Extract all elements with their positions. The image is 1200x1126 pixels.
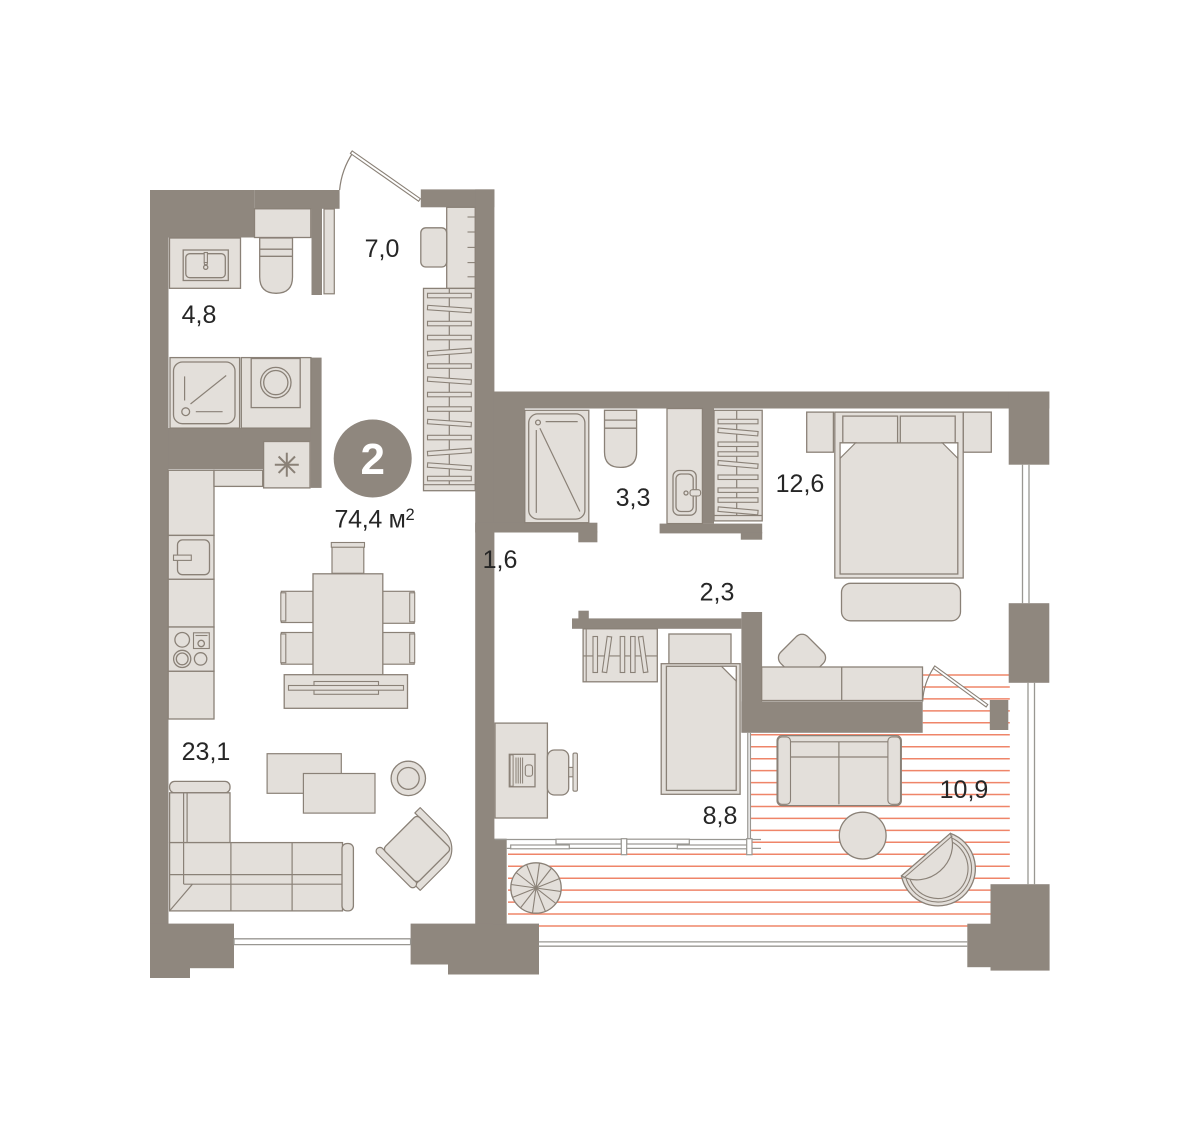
svg-text:2,3: 2,3 (700, 579, 735, 607)
svg-text:74,4 м2: 74,4 м2 (335, 506, 415, 534)
svg-text:8,8: 8,8 (703, 802, 738, 830)
svg-text:7,0: 7,0 (365, 235, 400, 263)
svg-text:2: 2 (360, 435, 384, 484)
svg-text:1,6: 1,6 (483, 546, 518, 574)
svg-text:10,9: 10,9 (940, 776, 989, 804)
svg-text:23,1: 23,1 (182, 738, 231, 766)
svg-text:4,8: 4,8 (182, 301, 217, 329)
svg-text:12,6: 12,6 (776, 470, 825, 498)
svg-text:3,3: 3,3 (616, 484, 651, 512)
